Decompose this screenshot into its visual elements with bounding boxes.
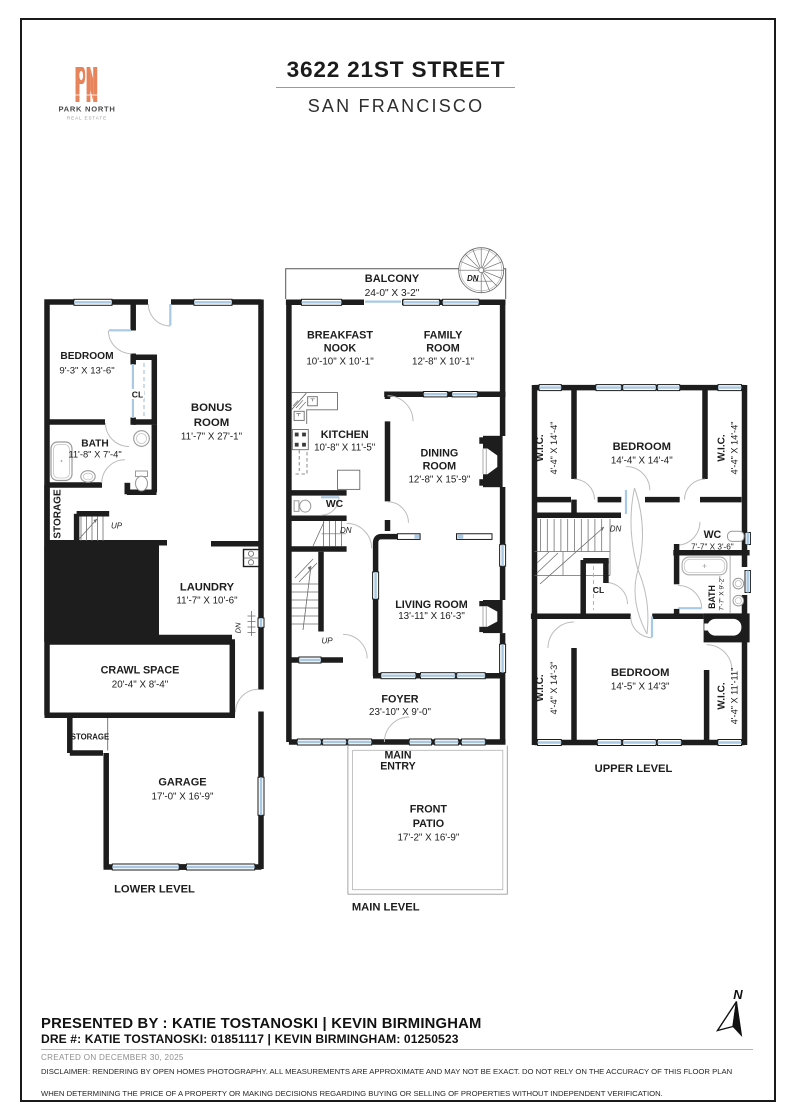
svg-text:MAIN LEVEL: MAIN LEVEL [352, 902, 420, 914]
svg-text:11'-7" X 27'-1": 11'-7" X 27'-1" [181, 432, 243, 443]
svg-text:23'-10" X 9'-0": 23'-10" X 9'-0" [369, 707, 431, 718]
svg-text:10'-8" X 11'-5": 10'-8" X 11'-5" [314, 443, 376, 454]
svg-text:PATIO: PATIO [413, 818, 444, 830]
svg-text:W.I.C.: W.I.C. [717, 434, 728, 461]
svg-text:STORAGE: STORAGE [71, 733, 109, 742]
svg-text:17'-2" X 16'-9": 17'-2" X 16'-9" [397, 833, 459, 844]
svg-text:20'-4" X 8'-4": 20'-4" X 8'-4" [112, 680, 169, 691]
svg-text:9'-3" X 13'-6": 9'-3" X 13'-6" [59, 366, 114, 377]
svg-text:14'-5" X 14'3": 14'-5" X 14'3" [611, 682, 670, 693]
svg-text:FRONT: FRONT [410, 804, 448, 816]
svg-text:BATH: BATH [707, 585, 717, 609]
svg-text:12'-8" X 15'-9": 12'-8" X 15'-9" [408, 475, 470, 486]
svg-text:LOWER LEVEL: LOWER LEVEL [114, 884, 195, 896]
svg-text:N: N [733, 987, 743, 1002]
svg-text:ROOM: ROOM [426, 342, 460, 354]
svg-text:GARAGE: GARAGE [158, 777, 206, 789]
svg-text:4'-4" X 14'-3": 4'-4" X 14'-3" [549, 662, 559, 715]
svg-text:BONUS: BONUS [191, 402, 233, 414]
svg-text:ROOM: ROOM [194, 417, 229, 429]
svg-text:FAMILY: FAMILY [424, 330, 463, 342]
svg-text:CL: CL [132, 390, 143, 400]
svg-text:UP: UP [111, 522, 123, 531]
svg-text:STORAGE: STORAGE [53, 489, 64, 539]
svg-text:W.I.C.: W.I.C. [717, 682, 728, 709]
svg-text:WC: WC [326, 499, 344, 510]
svg-text:LAUNDRY: LAUNDRY [180, 582, 235, 594]
svg-text:REAL ESTATE: REAL ESTATE [67, 116, 107, 121]
svg-text:W.I.C.: W.I.C. [535, 434, 546, 461]
svg-text:LIVING ROOM: LIVING ROOM [395, 599, 468, 611]
svg-text:24-0" X 3-2": 24-0" X 3-2" [365, 288, 420, 299]
svg-text:CRAWL SPACE: CRAWL SPACE [101, 665, 180, 677]
svg-text:BREAKFAST: BREAKFAST [307, 330, 373, 342]
svg-text:12'-8" X 10'-1": 12'-8" X 10'-1" [412, 357, 474, 368]
svg-text:BEDROOM: BEDROOM [613, 441, 671, 453]
svg-text:DINING: DINING [421, 447, 459, 459]
svg-text:4'-4" X 14'-4": 4'-4" X 14'-4" [549, 422, 559, 475]
svg-text:BEDROOM: BEDROOM [611, 667, 669, 679]
svg-text:NOOK: NOOK [324, 342, 357, 354]
svg-text:UP: UP [321, 637, 333, 646]
svg-text:FOYER: FOYER [381, 693, 418, 705]
svg-text:DN: DN [610, 525, 622, 534]
svg-text:WC: WC [704, 529, 722, 541]
svg-text:14'-4" X 14'-4": 14'-4" X 14'-4" [611, 456, 673, 467]
svg-text:DN: DN [234, 622, 243, 633]
svg-text:PARK NORTH: PARK NORTH [58, 105, 115, 114]
svg-text:4'-4" X 14'-4": 4'-4" X 14'-4" [730, 422, 740, 475]
svg-text:7'-7" X 3'-6": 7'-7" X 3'-6" [691, 542, 734, 551]
svg-text:11'-8" X 7'-4": 11'-8" X 7'-4" [68, 449, 121, 460]
svg-text:CL: CL [593, 585, 604, 595]
svg-text:4'-4" X 11'-11": 4'-4" X 11'-11" [730, 668, 740, 725]
svg-text:KITCHEN: KITCHEN [321, 429, 369, 441]
svg-text:ENTRY: ENTRY [380, 760, 416, 772]
svg-text:DN: DN [340, 526, 352, 535]
svg-text:UPPER LEVEL: UPPER LEVEL [595, 763, 673, 775]
svg-text:BALCONY: BALCONY [365, 273, 420, 285]
svg-text:11'-7" X 10'-6": 11'-7" X 10'-6" [176, 596, 238, 607]
svg-text:BEDROOM: BEDROOM [60, 351, 113, 362]
svg-text:W.I.C.: W.I.C. [535, 674, 546, 701]
svg-text:13'-11" X 16'-3": 13'-11" X 16'-3" [398, 611, 465, 622]
svg-text:ROOM: ROOM [423, 461, 457, 473]
svg-text:10'-10" X 10'-1": 10'-10" X 10'-1" [306, 357, 374, 368]
svg-text:7'-7" X 9'-2": 7'-7" X 9'-2" [719, 576, 726, 611]
svg-text:DN: DN [467, 274, 479, 283]
svg-text:17'-0" X 16'-9": 17'-0" X 16'-9" [152, 792, 214, 803]
